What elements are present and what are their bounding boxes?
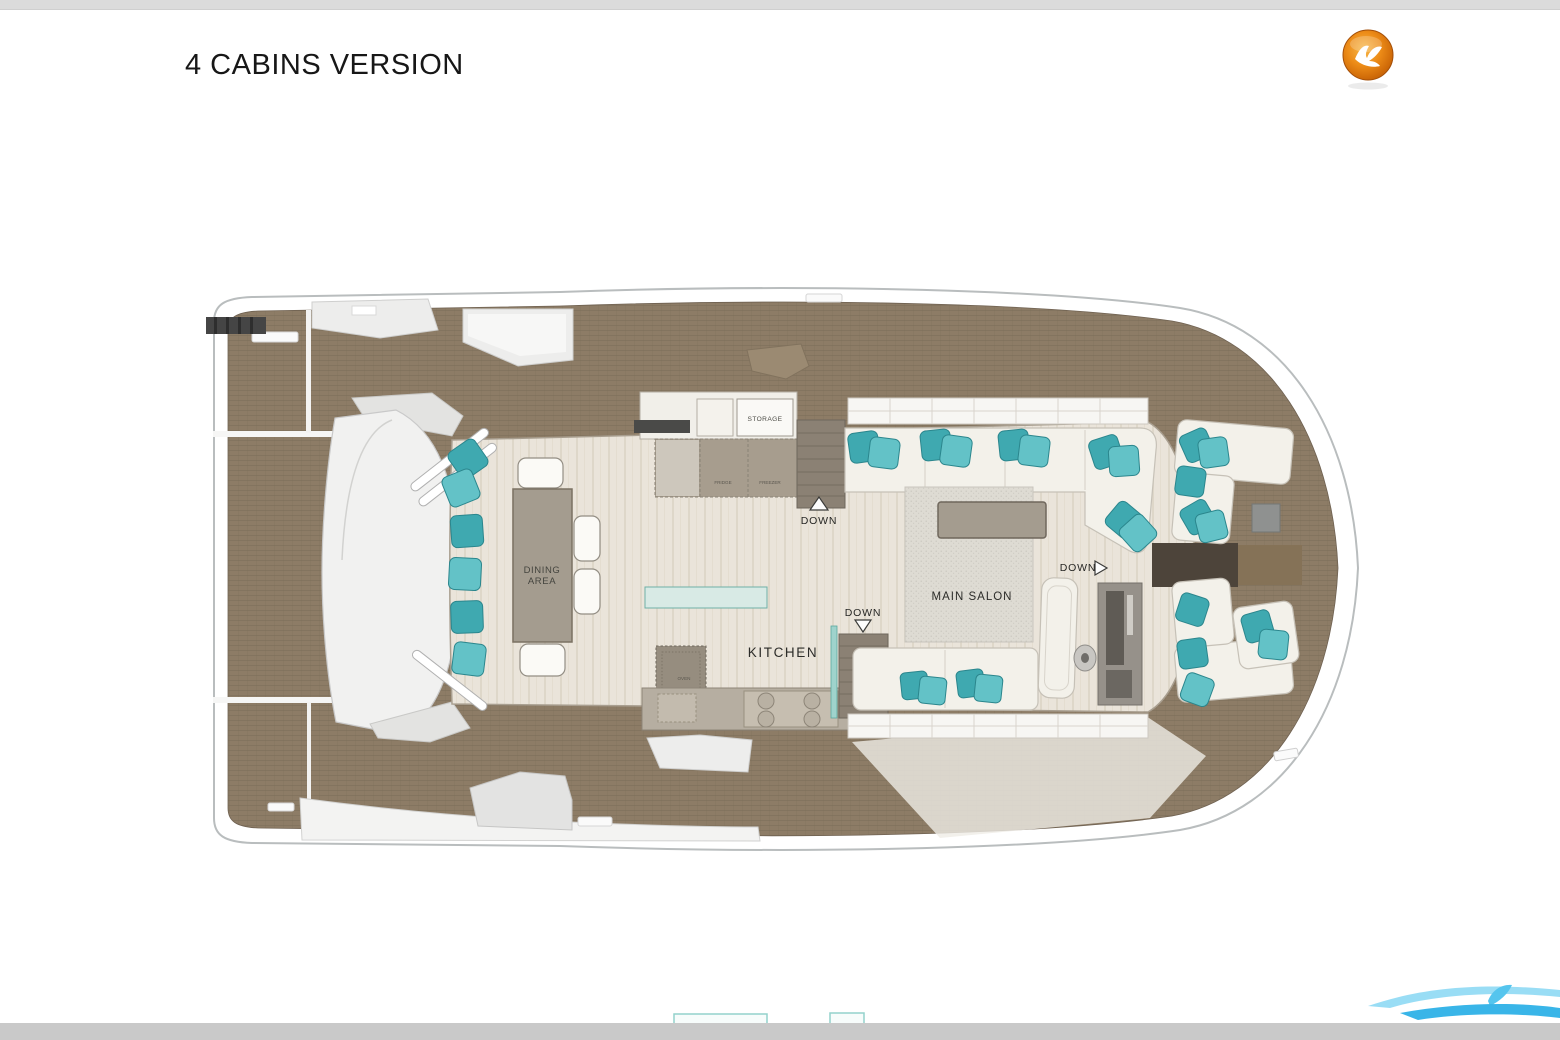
fridge-label: FRIDGE <box>714 480 731 485</box>
front-window-band <box>848 398 1148 424</box>
cushion <box>1197 436 1230 469</box>
wave-upper <box>1368 987 1560 1008</box>
cushion <box>450 600 483 633</box>
burner <box>804 711 820 727</box>
burner <box>804 693 820 709</box>
cushion <box>1176 637 1209 670</box>
oven-label: OVEN <box>677 676 690 681</box>
aft-window-band <box>848 714 1148 738</box>
dining-chair <box>574 569 600 614</box>
cushion <box>867 436 900 469</box>
burner <box>758 693 774 709</box>
page-title: 4 CABINS VERSION <box>185 49 464 81</box>
cushion <box>918 676 948 706</box>
cushion <box>451 641 487 677</box>
cushion <box>974 674 1004 704</box>
cushion <box>1194 509 1229 544</box>
dining-area-label: AREA <box>528 576 556 587</box>
stairs-forward <box>797 420 845 508</box>
wave-watermark <box>1368 985 1560 1020</box>
wave-lower <box>1400 1004 1560 1020</box>
cushion <box>1174 465 1207 498</box>
dining-chair <box>574 516 600 561</box>
broker-logo <box>1343 30 1393 90</box>
cushion <box>1017 434 1050 467</box>
dining-chair <box>520 644 565 676</box>
deck-seam <box>213 697 333 703</box>
freezer-label: FREEZER <box>759 480 781 485</box>
burner <box>758 711 774 727</box>
storage-label: STORAGE <box>748 416 783 423</box>
dining-area-label: DINING <box>524 565 561 576</box>
main-salon-label: MAIN SALON <box>932 591 1013 603</box>
cushion <box>939 434 973 468</box>
fridge-cabinet: FRIDGE FREEZER <box>655 439 800 497</box>
screenshot-canvas: 4 CABINS VERSION <box>0 0 1560 1040</box>
cockpit-console <box>647 735 752 772</box>
deck-seam <box>307 702 311 802</box>
speaker-core <box>1081 653 1089 663</box>
kitchen-island <box>645 587 767 608</box>
tv-console <box>1098 583 1142 705</box>
bow-table <box>1252 504 1280 532</box>
passage-steps <box>1238 545 1302 585</box>
cushion <box>1258 629 1290 661</box>
sink <box>658 694 696 722</box>
deck-hatch <box>578 817 612 826</box>
dining-chair <box>518 458 563 488</box>
down-label: DOWN <box>845 607 881 619</box>
counter-edge <box>831 626 837 718</box>
engine-vent-grill <box>206 317 266 334</box>
page-top-bar <box>0 0 1560 9</box>
floor-plan-canvas: 4 CABINS VERSION <box>0 0 1560 1040</box>
deck-seam <box>213 431 333 437</box>
deck-hatch <box>268 803 294 811</box>
cushion <box>450 514 484 548</box>
console-hatch <box>352 306 376 315</box>
logo-shadow <box>1348 83 1388 90</box>
cushion <box>448 557 482 591</box>
down-label: DOWN <box>1060 562 1096 574</box>
down-label: DOWN <box>801 515 837 527</box>
page-bottom-bar <box>0 1023 1560 1040</box>
boat-plan: DINING AREA STORAGE FRIDGE FREEZER DOWN <box>206 288 1358 850</box>
deck-hatch <box>806 294 842 302</box>
vent-strip <box>634 420 690 433</box>
deck-seam <box>306 310 311 433</box>
cushion <box>1108 445 1140 477</box>
kitchen-label: KITCHEN <box>748 645 818 660</box>
daybed <box>1038 577 1078 698</box>
coffee-table <box>938 502 1046 538</box>
locker <box>697 399 733 436</box>
